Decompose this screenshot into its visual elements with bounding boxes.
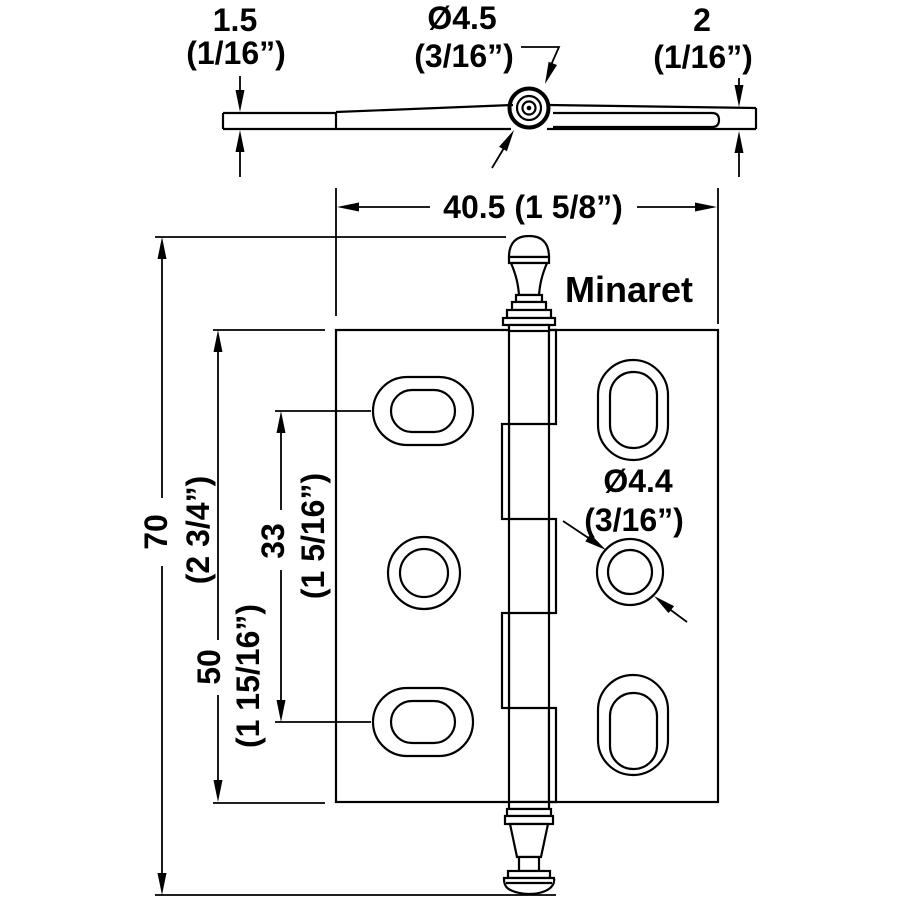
arrow-down-icon xyxy=(277,700,286,722)
style-label: Minaret xyxy=(565,269,693,310)
arrow-down-icon xyxy=(236,90,245,112)
dim-label-width: 40.5 (1 5/8”) xyxy=(443,189,623,225)
arrow-up-icon xyxy=(214,330,223,352)
arrow-up-icon xyxy=(158,237,167,259)
finial-neck xyxy=(511,263,547,295)
dim-label-leaf1-in: (1/16”) xyxy=(186,35,286,71)
dim-label-height-in: (2 3/4”) xyxy=(180,476,216,584)
arrow-diagonal-icon xyxy=(499,130,514,151)
dim-label-screwhole-mm: Ø4.4 xyxy=(603,463,673,499)
arrow-up-icon xyxy=(236,130,245,152)
arrow-down-icon xyxy=(735,85,744,107)
arrow-down-icon xyxy=(214,780,223,802)
hinge-barrel xyxy=(502,328,556,804)
leaf-inner-profile xyxy=(553,113,719,127)
side-view xyxy=(223,89,756,130)
finial-dome xyxy=(509,236,549,257)
drawing-svg: 1.5 (1/16”) Ø4.5 (3/16”) 2 (1/16”) 40.5 … xyxy=(0,0,900,900)
dim-label-leafheight-mm: 50 xyxy=(191,649,227,685)
dim-label-height-mm: 70 xyxy=(138,514,174,550)
dim-label-pitch-mm: 33 xyxy=(255,523,291,559)
dim-leaf2-thickness xyxy=(735,78,744,177)
dim-label-screwhole-in: (3/16”) xyxy=(584,502,684,538)
dim-label-leafheight-in: (1 15/16”) xyxy=(230,604,266,748)
dim-label-leaf1-mm: 1.5 xyxy=(213,2,257,38)
dim-label-pin-mm: Ø4.5 xyxy=(427,0,496,36)
arrow-up-icon xyxy=(735,131,744,153)
dim-label-pitch-in: (1 5/16”) xyxy=(295,473,331,599)
top-finial xyxy=(503,236,555,331)
arrow-diagonal-icon xyxy=(545,62,557,84)
arrow-up-icon xyxy=(277,411,286,433)
dim-leaf1-thickness xyxy=(236,76,245,177)
dim-label-leaf2-in: (1/16”) xyxy=(653,39,753,75)
hinge-technical-drawing: 1.5 (1/16”) Ø4.5 (3/16”) 2 (1/16”) 40.5 … xyxy=(0,0,900,900)
finial-neck xyxy=(510,824,548,857)
front-view xyxy=(336,236,718,894)
dim-label-leaf2-mm: 2 xyxy=(693,2,711,38)
bottom-finial xyxy=(504,802,554,894)
finial-dome xyxy=(504,878,554,894)
knuckle-circles xyxy=(510,89,549,128)
arrow-right-icon xyxy=(695,203,717,212)
arrow-left-icon xyxy=(337,203,359,212)
dim-label-pin-in: (3/16”) xyxy=(414,38,514,74)
arrow-down-icon xyxy=(158,873,167,895)
